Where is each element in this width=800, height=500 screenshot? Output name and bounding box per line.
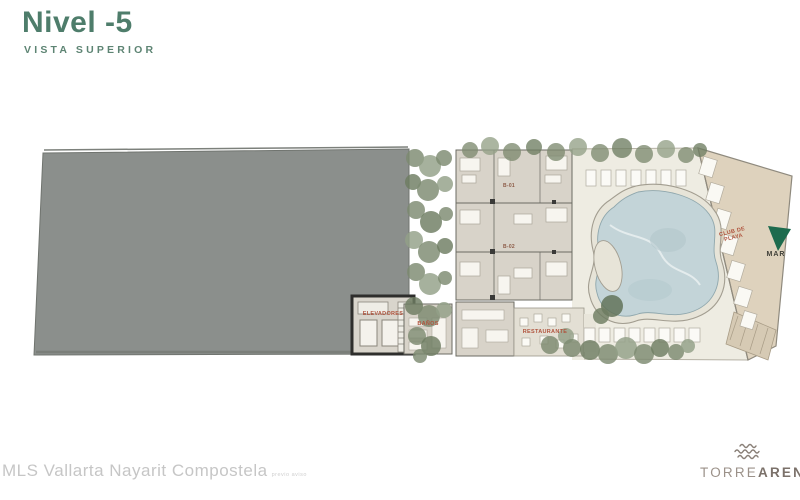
- restaurant-label: RESTAURANTE: [512, 329, 578, 335]
- brand-name: TORREARENA: [700, 465, 796, 480]
- unit-b01-label: B-01: [494, 184, 524, 190]
- floorplan-page: Nivel -5 VISTA SUPERIOR ELEVADORES BAÑOS…: [0, 0, 800, 500]
- waves-icon: [731, 442, 765, 462]
- watermark: MLS Vallarta Nayarit Compostelaprevio av…: [2, 461, 307, 481]
- unit-block: [456, 150, 572, 300]
- bathrooms-label: BAÑOS: [404, 321, 452, 327]
- page-subtitle: VISTA SUPERIOR: [24, 44, 156, 56]
- unit-b02-label: B-02: [494, 245, 524, 251]
- site-plan-drawing: [0, 0, 800, 500]
- watermark-small-text: previo aviso: [272, 472, 307, 478]
- elevators-label: ELEVADORES: [352, 311, 414, 317]
- sea-label: MAR: [760, 251, 792, 258]
- brand-logo: TORREARENA: [700, 442, 796, 480]
- loungers-top-row: [586, 170, 686, 186]
- watermark-text: MLS Vallarta Nayarit Compostela: [2, 461, 268, 480]
- page-title: Nivel -5: [22, 6, 133, 40]
